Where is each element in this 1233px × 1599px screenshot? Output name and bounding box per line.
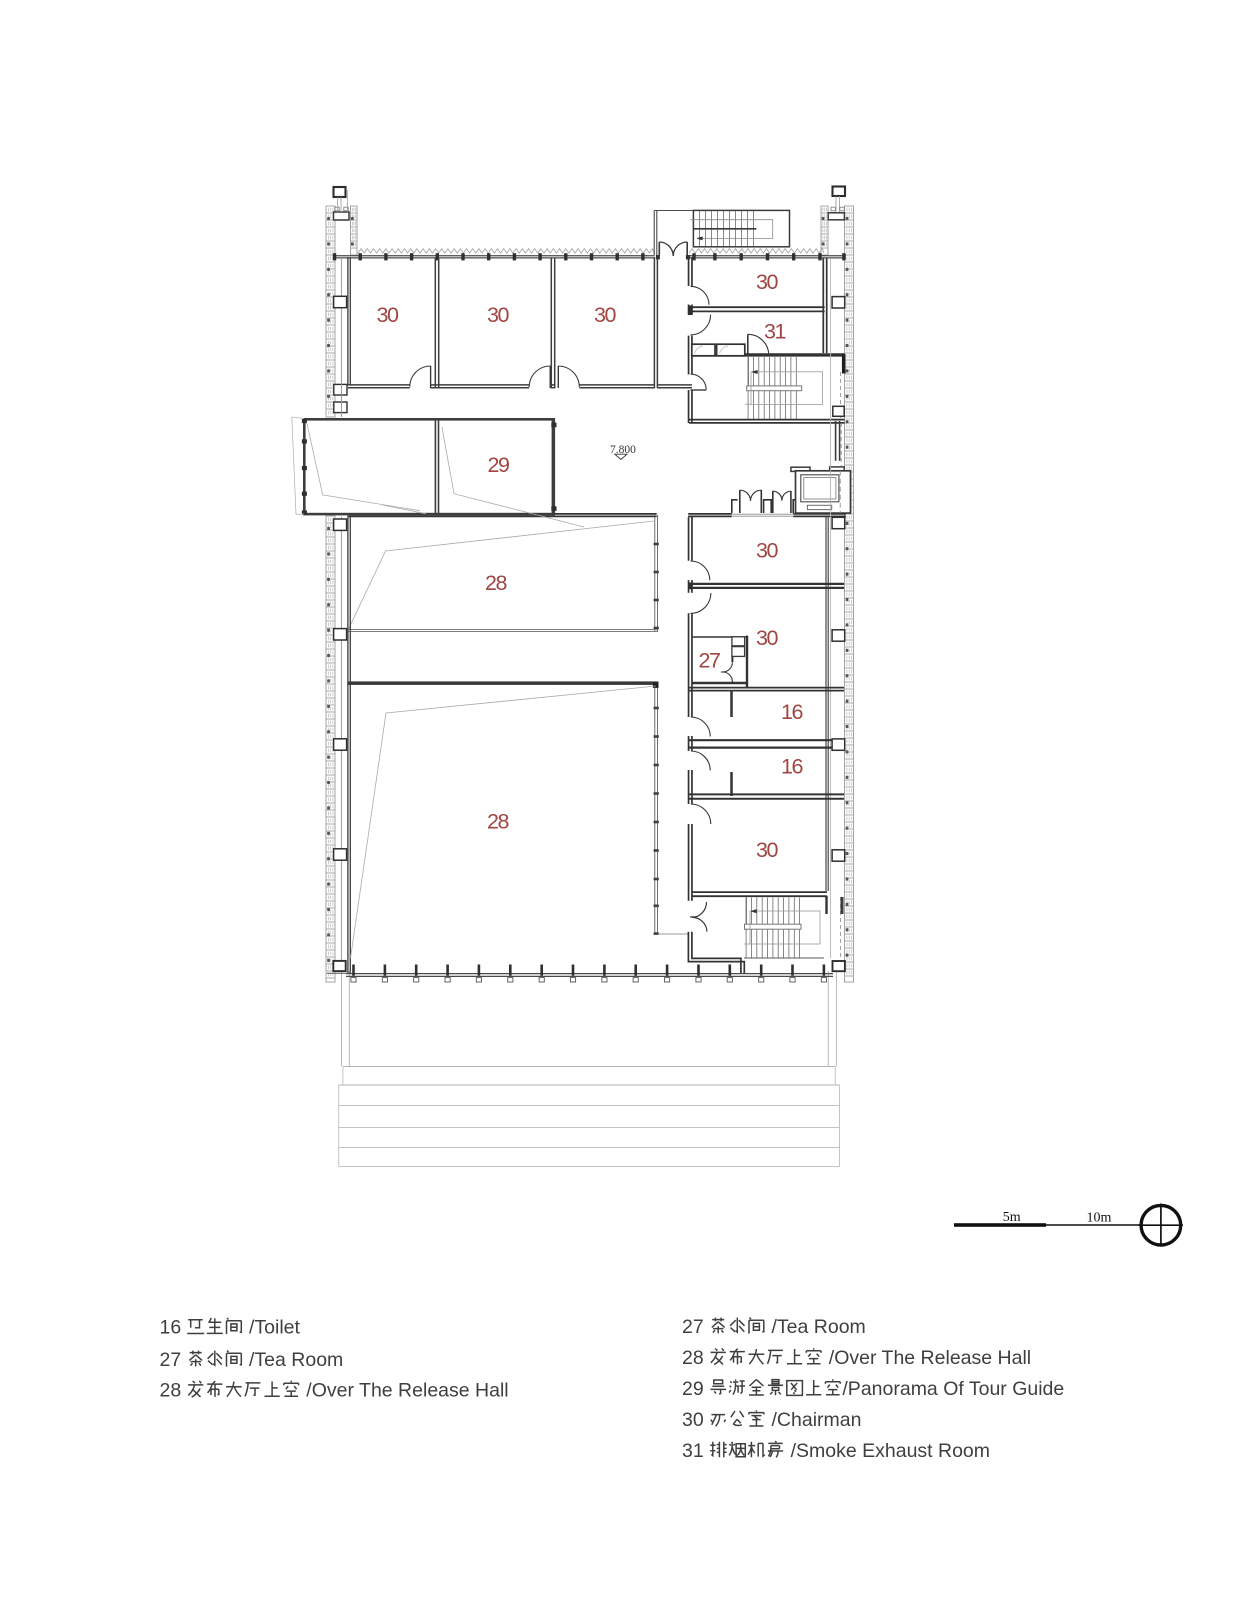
svg-text:/Chairman: /Chairman: [772, 1409, 862, 1431]
svg-text:30: 30: [682, 1409, 704, 1431]
svg-text:30: 30: [756, 626, 778, 650]
svg-text:27: 27: [699, 649, 720, 673]
svg-text:/Tea Room: /Tea Room: [772, 1316, 866, 1338]
svg-text:28: 28: [485, 571, 507, 595]
svg-text:30: 30: [377, 303, 399, 327]
svg-text:31: 31: [682, 1440, 704, 1462]
svg-text:5m: 5m: [1003, 1210, 1021, 1225]
svg-text:30: 30: [756, 539, 778, 563]
svg-text:29: 29: [682, 1378, 704, 1400]
svg-text:30: 30: [594, 303, 616, 327]
svg-text:10m: 10m: [1087, 1211, 1112, 1226]
svg-text:31: 31: [764, 320, 785, 344]
svg-text:/Tea Room: /Tea Room: [249, 1349, 343, 1371]
svg-text:29: 29: [488, 453, 509, 477]
svg-text:16: 16: [160, 1317, 182, 1339]
svg-text:30: 30: [756, 838, 778, 862]
svg-text:30: 30: [756, 270, 778, 294]
svg-text:/Over The Release Hall: /Over The Release Hall: [829, 1347, 1031, 1369]
svg-text:16: 16: [781, 700, 803, 724]
svg-text:30: 30: [487, 303, 509, 327]
svg-text:28: 28: [160, 1380, 182, 1402]
svg-text:27: 27: [682, 1316, 704, 1338]
svg-text:/Smoke Exhaust Room: /Smoke Exhaust Room: [791, 1440, 990, 1462]
svg-text:28: 28: [682, 1347, 704, 1369]
svg-text:27: 27: [160, 1349, 182, 1371]
svg-text:/Toilet: /Toilet: [249, 1317, 301, 1339]
svg-text:16: 16: [781, 755, 803, 779]
svg-text:/Panorama Of Tour Guide: /Panorama Of Tour Guide: [842, 1378, 1064, 1400]
svg-text:/Over The Release Hall: /Over The Release Hall: [306, 1380, 508, 1402]
svg-text:28: 28: [487, 810, 509, 834]
